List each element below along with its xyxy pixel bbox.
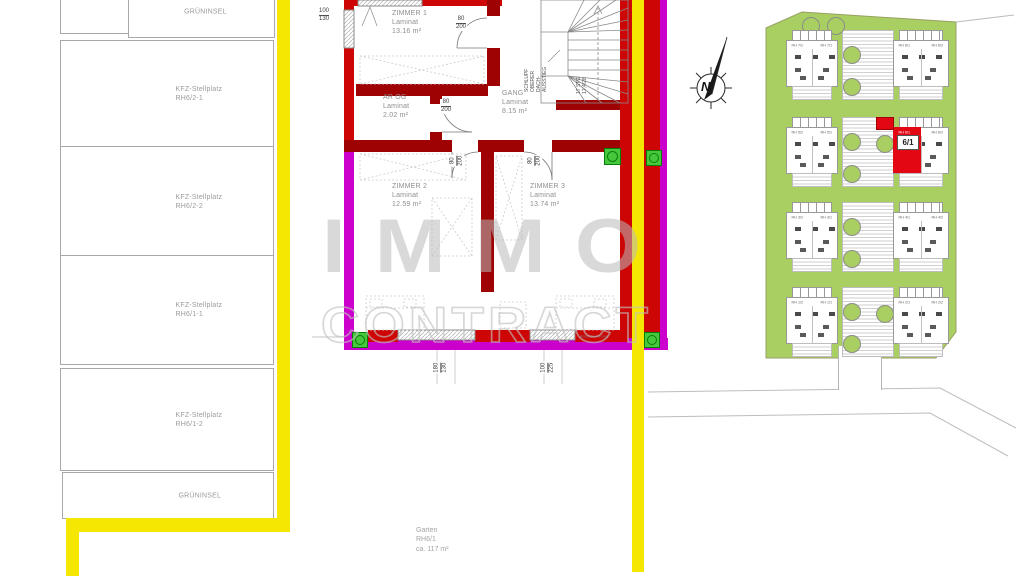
site-house-block-rh8: RH 8/1RH 8/2	[893, 30, 949, 98]
house-body	[786, 221, 838, 259]
stair-steps-label: 17 STG17,4/28	[576, 42, 588, 94]
wall-segment	[644, 0, 660, 350]
house-body	[786, 49, 838, 87]
highlighted-garage	[876, 117, 894, 130]
wall-segment	[430, 132, 442, 140]
room-label-gang: GANG Laminat 8.15 m²	[502, 90, 528, 116]
house-body	[893, 306, 949, 344]
terrace-strip	[899, 258, 943, 272]
room-area: 8.15 m²	[502, 108, 528, 117]
parking-unit: RH6/1-1	[175, 310, 222, 319]
unit-label: RH 8/1	[899, 44, 911, 48]
parking-unit: RH6/2-2	[175, 202, 222, 211]
room-label-zimmer2: ZIMMER 2 Laminat 12.59 m²	[392, 183, 427, 209]
garden-label: Garten RH6/1 ca. 117 m²	[416, 526, 449, 554]
column-marker	[352, 332, 368, 348]
tree-icon	[843, 250, 861, 268]
house-body	[786, 306, 838, 344]
unit-label: RH 5/1	[821, 131, 833, 135]
room-name: AR OG	[383, 94, 409, 103]
unit-label: RH 3/1	[821, 216, 833, 220]
wall-segment	[344, 6, 354, 140]
room-area: 12.59 m²	[392, 201, 427, 210]
garden-line: Garten	[416, 526, 449, 535]
unit-label: RH 6/2	[932, 131, 944, 135]
wall-segment	[487, 0, 500, 16]
room-name: ZIMMER 1	[392, 10, 427, 19]
garden-line: RH6/1	[416, 535, 449, 544]
unit-label: RH 2/1	[899, 301, 911, 305]
wall-segment	[478, 140, 524, 152]
dim-window-180-130: 180130	[433, 362, 448, 374]
site-house-block-rh5: RH 5/2RH 5/1	[786, 117, 838, 185]
north-label: N	[701, 79, 710, 94]
tree-icon	[843, 303, 861, 321]
tree-icon	[843, 218, 861, 236]
room-name: ZIMMER 3	[530, 183, 565, 192]
terrace-strip	[899, 173, 943, 187]
room-label-zimmer3: ZIMMER 3 Laminat 13.74 m²	[530, 183, 565, 209]
unit-label: RH 8/2	[932, 44, 944, 48]
plot-boundary-yellow	[66, 518, 79, 576]
site-house-block-rh7: RH 7/2RH 7/1	[786, 30, 838, 98]
house-body	[893, 49, 949, 87]
column-marker	[644, 332, 660, 348]
dim-door-80-200: 80200	[455, 16, 467, 31]
room-floor: Laminat	[392, 19, 427, 28]
column-marker	[646, 150, 662, 166]
unit-label: RH 3/2	[792, 216, 804, 220]
wall-segment	[475, 330, 530, 342]
unit-label: RH 2/2	[932, 301, 944, 305]
tree-icon	[876, 305, 894, 323]
parking-label: KFZ-Stellplatz	[175, 410, 222, 419]
room-area: 13.74 m²	[530, 201, 565, 210]
parking-unit: RH6/2-1	[175, 94, 222, 103]
parking-space-rh6-2-1: KFZ-StellplatzRH6/2-1	[60, 40, 274, 148]
parking-space-rh6-1-2: KFZ-StellplatzRH6/1-2	[60, 368, 274, 471]
window-note: Absturzsicherung	[580, 335, 608, 339]
dim-window-100-130: 100130	[318, 8, 330, 23]
unit-label: RH 4/2	[932, 216, 944, 220]
floorplan-page: GRÜNINSEL KFZ-StellplatzRH6/2-1 KFZ-Stel…	[0, 0, 1024, 576]
parking-space-rh6-2-2: KFZ-StellplatzRH6/2-2	[60, 146, 274, 257]
highlighted-unit-tag: 6/1	[897, 135, 919, 150]
plot-boundary-yellow	[66, 518, 290, 532]
wall-segment	[556, 100, 628, 110]
terrace-strip	[792, 343, 832, 357]
tree-icon	[843, 165, 861, 183]
room-name: ZIMMER 2	[392, 183, 427, 192]
tree-icon	[843, 46, 861, 64]
wall-segment	[487, 48, 500, 86]
plot-boundary-yellow	[277, 0, 290, 532]
parking-label: KFZ-Stellplatz	[175, 301, 222, 310]
tree-icon	[876, 135, 894, 153]
green-island-top: GRÜNINSEL	[128, 0, 275, 38]
site-house-block-rh3: RH 3/2RH 3/1	[786, 202, 838, 270]
column-marker	[604, 148, 621, 165]
wall-segment	[344, 140, 452, 152]
unit-label: RH 5/2	[792, 131, 804, 135]
unit-label: RH 4/1	[899, 216, 911, 220]
parking-label: KFZ-Stellplatz	[175, 85, 222, 94]
house-body	[786, 136, 838, 174]
room-area: 2.02 m²	[383, 112, 409, 121]
terrace-strip	[792, 258, 832, 272]
wall-segment	[344, 140, 354, 350]
room-floor: Laminat	[383, 103, 409, 112]
room-label-zimmer1: ZIMMER 1 Laminat 13.16 m²	[392, 10, 427, 36]
tree-icon	[843, 78, 861, 96]
unit-label: RH 6/1	[899, 131, 911, 135]
empty-lot-box	[60, 0, 130, 34]
unit-label: RH 1/1	[821, 301, 833, 305]
terrace-strip	[792, 173, 832, 187]
dim-door-80-200: 80200	[527, 155, 542, 167]
parking-label: KFZ-Stellplatz	[175, 192, 222, 201]
wall-segment	[368, 330, 398, 342]
site-house-block-rh1: RH 1/2RH 1/1	[786, 287, 838, 355]
stair-note: SCHLUPFOBERER DACH-AUSSTIEG	[524, 36, 548, 92]
room-floor: Laminat	[392, 192, 427, 201]
room-area: 13.16 m²	[392, 28, 427, 37]
site-house-block-rh2: RH 2/1RH 2/2	[893, 287, 949, 355]
dim-door-100-225: 100225	[540, 362, 555, 374]
terrace-strip	[792, 86, 832, 100]
corner-mark	[362, 7, 377, 26]
watermark-immo: IMMO	[322, 203, 670, 290]
wall-segment	[356, 84, 488, 96]
north-arrow	[690, 37, 732, 109]
dim-door-80-200: 80200	[449, 155, 464, 167]
dim-door-80-200: 80200	[440, 99, 452, 114]
tree-icon	[843, 335, 861, 353]
site-house-block-rh4: RH 4/1RH 4/2	[893, 202, 949, 270]
tree-icon	[843, 133, 861, 151]
house-body	[893, 221, 949, 259]
garden-line: ca. 117 m²	[416, 545, 449, 554]
wall-segment	[660, 0, 667, 350]
roads	[648, 388, 1016, 456]
plot-boundary-yellow	[632, 0, 644, 572]
site-house-block-rh6-highlighted: RH 6/1RH 6/2 6/1	[893, 117, 949, 185]
green-island-bottom: GRÜNINSEL	[62, 472, 274, 519]
parking-unit: RH6/1-2	[175, 420, 222, 429]
parking-label: GRÜNINSEL	[184, 7, 227, 16]
terrace-strip	[899, 343, 943, 357]
parking-label: GRÜNINSEL	[179, 491, 222, 500]
parking-space-rh6-1-1: KFZ-StellplatzRH6/1-1	[60, 255, 274, 365]
room-floor: Laminat	[502, 99, 528, 108]
room-floor: Laminat	[530, 192, 565, 201]
wall-segment	[481, 152, 494, 292]
unit-label: RH 1/2	[792, 301, 804, 305]
unit-label: RH 7/2	[792, 44, 804, 48]
terrace-strip	[899, 86, 943, 100]
unit-label: RH 7/1	[821, 44, 833, 48]
room-label-ar-og: AR OG Laminat 2.02 m²	[383, 94, 409, 120]
